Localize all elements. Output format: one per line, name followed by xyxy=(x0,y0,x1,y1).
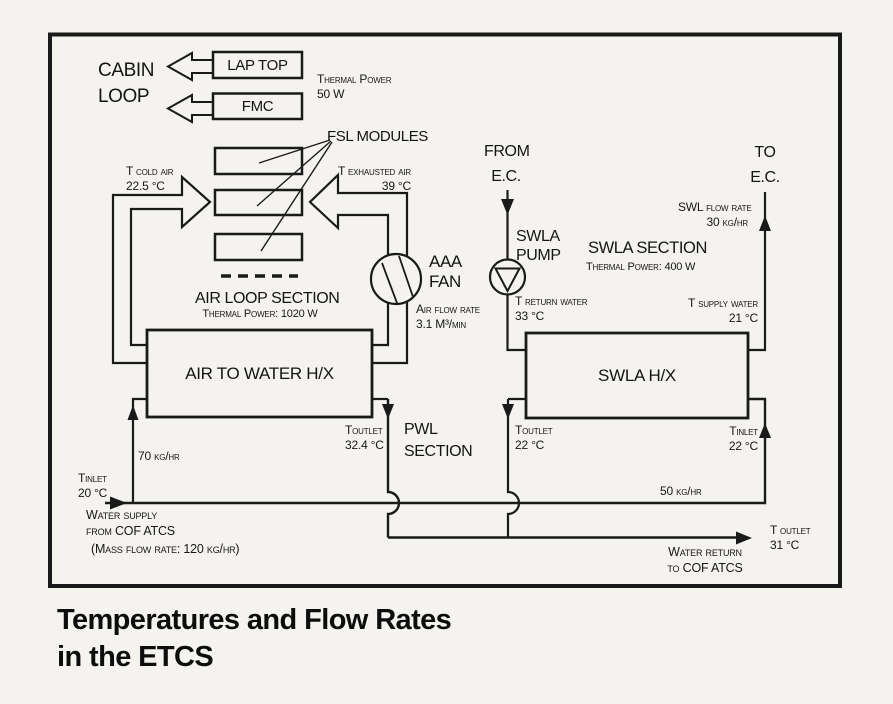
t-return-water-label: T return water33 °C xyxy=(515,294,587,324)
water-supply-label: Water supplyfrom COF ATCS xyxy=(86,508,175,539)
air-hx-toutlet-label: Toutlet32.4 °C xyxy=(345,423,384,453)
swla-hx-outlet-pipe xyxy=(502,399,526,538)
fsl-modules-label: FSL MODULES xyxy=(327,124,428,149)
air-flow-rate-label: Air flow rate3.1 M³/min xyxy=(416,302,480,332)
swl-flow-rate-label: SWL flow rate30 kg/hr xyxy=(678,200,748,230)
aaa-fan-icon xyxy=(371,254,421,304)
flow-arrow-right-icon xyxy=(736,532,752,545)
flow-rate-50-label: 50 kg/hr xyxy=(660,484,702,499)
flow-rate-70-label: 70 kg/hr xyxy=(138,449,180,464)
fsl-module-1 xyxy=(215,148,302,174)
figure-caption: Temperatures and Flow Rates in the ETCS xyxy=(57,602,451,676)
from-ec-pipe xyxy=(501,190,514,260)
etcs-diagram-page: CABINLOOP LAP TOP FMC Thermal Power50 W … xyxy=(0,0,893,704)
fmc-box-label: FMC xyxy=(213,94,302,120)
flow-arrow-up-icon xyxy=(759,423,771,438)
cabin-loop-label: CABINLOOP xyxy=(98,58,154,110)
swla-hx-toutlet-label: Toutlet22 °C xyxy=(515,423,553,453)
to-ec-pipe xyxy=(748,192,771,350)
return-toutlet-label: T outlet31 °C xyxy=(770,523,810,553)
swla-hx-tinlet-label: Tinlet22 °C xyxy=(706,424,758,454)
flow-arrow-down-icon xyxy=(502,404,514,419)
t-cold-air-label: T cold air22.5 °C xyxy=(126,164,173,194)
flow-arrow-down-icon xyxy=(501,199,514,215)
cabin-arrow-fmc-icon xyxy=(168,95,213,122)
cabin-arrow-laptop-icon xyxy=(168,53,213,80)
swla-section-label: SWLA SECTION xyxy=(588,238,707,258)
laptop-box-label: LAP TOP xyxy=(213,52,302,78)
air-hx-outlet-pipe xyxy=(372,399,399,538)
swla-hx-label: SWLA H/X xyxy=(526,333,748,418)
swla-thermal-power-label: Thermal Power: 400 W xyxy=(586,260,690,275)
fsl-module-3 xyxy=(215,234,302,260)
t-supply-water-label: T supply water21 °C xyxy=(686,296,758,326)
cabin-thermal-power-label: Thermal Power50 W xyxy=(317,72,391,102)
air-to-water-hx-label: AIR TO WATER H/X xyxy=(147,330,372,417)
to-ec-label: TOE.C. xyxy=(745,140,785,190)
supply-tinlet-label: Tinlet20 °C xyxy=(78,471,107,501)
water-return-label: Water returnto COF ATCS xyxy=(664,545,746,576)
flow-arrow-up-icon xyxy=(759,216,771,232)
water-return-line xyxy=(388,532,752,545)
flow-arrow-up-icon xyxy=(128,405,139,420)
mass-flow-rate-label: (Mass flow rate: 120 kg/hr) xyxy=(91,542,239,557)
air-loop-thermal-power-label: Thermal Power: 1020 W xyxy=(195,307,325,322)
t-exhausted-air-label: T exhausted air39 °C xyxy=(333,164,411,194)
aaa-fan-label: AAAFAN xyxy=(429,252,462,292)
from-ec-label: FROME.C. xyxy=(484,139,528,189)
pwl-section-label: PWLSECTION xyxy=(404,419,472,463)
fsl-module-2 xyxy=(215,190,302,215)
flow-arrow-down-icon xyxy=(382,404,394,419)
swla-pump-label: SWLAPUMP xyxy=(516,228,561,265)
